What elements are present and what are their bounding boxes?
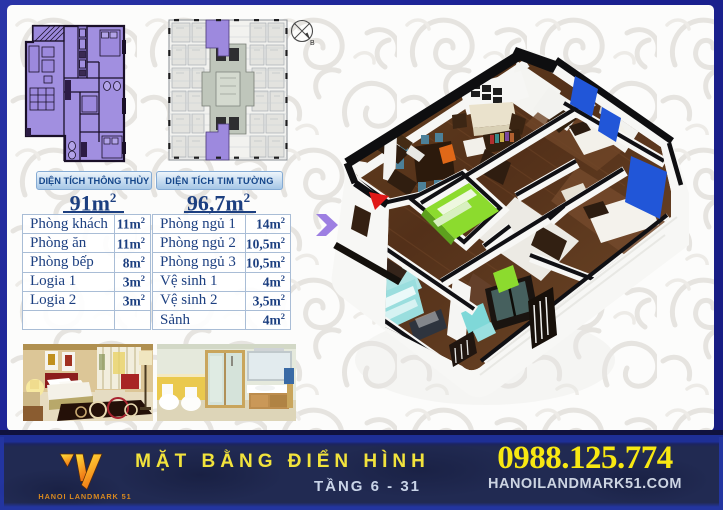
svg-text:B: B [310,40,315,47]
